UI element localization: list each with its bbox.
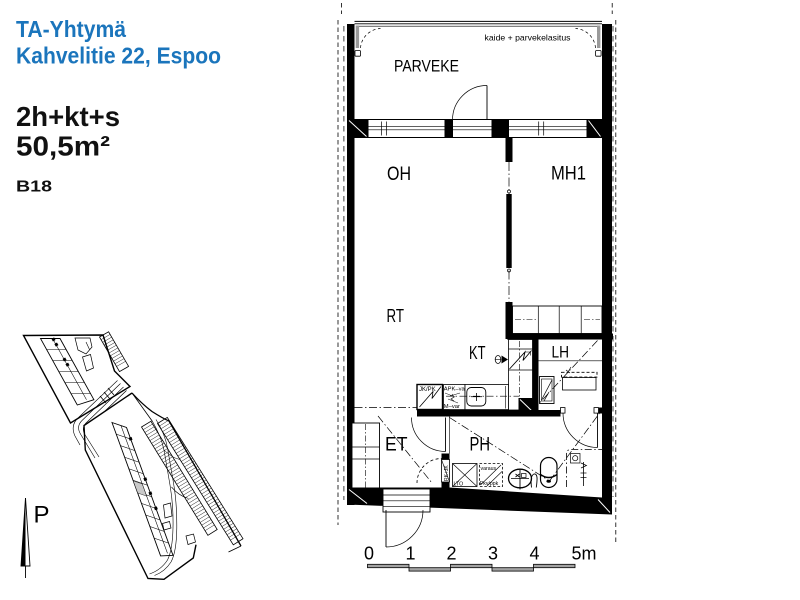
svg-text:PARVEKE: PARVEKE (394, 58, 459, 76)
svg-text:PH: PH (470, 435, 491, 456)
svg-text:M–var: M–var (444, 404, 460, 410)
svg-text:Pkv/ppk: Pkv/ppk (480, 481, 499, 487)
svg-text:LTO: LTO (454, 482, 464, 488)
svg-text:P: P (34, 502, 50, 529)
svg-text:4: 4 (530, 544, 540, 564)
svg-text:0: 0 (364, 544, 374, 564)
svg-text:OH: OH (387, 164, 411, 185)
svg-text:2h+kt+s: 2h+kt+s (16, 101, 120, 132)
svg-text:JK/PK: JK/PK (419, 387, 436, 393)
svg-text:Kahvelitie 22, Espoo: Kahvelitie 22, Espoo (16, 43, 221, 69)
svg-text:LH: LH (552, 343, 570, 362)
svg-text:kaide + parvekelasitus: kaide + parvekelasitus (485, 33, 571, 43)
svg-text:ET: ET (385, 435, 408, 456)
svg-text:RK+JK: RK+JK (444, 465, 450, 481)
svg-text:1: 1 (406, 544, 416, 564)
svg-text:varaus: varaus (481, 466, 497, 472)
svg-text:3: 3 (488, 544, 498, 564)
svg-text:2: 2 (447, 544, 457, 564)
svg-text:KT: KT (469, 343, 486, 363)
svg-text:MH1: MH1 (551, 164, 586, 185)
svg-text:B18: B18 (16, 179, 52, 196)
svg-text:APK–var: APK–var (444, 387, 467, 393)
svg-text:TA-Yhtymä: TA-Yhtymä (16, 16, 126, 42)
svg-text:RT: RT (387, 306, 405, 326)
svg-text:5m: 5m (572, 544, 597, 564)
svg-text:50,5m²: 50,5m² (16, 131, 110, 162)
